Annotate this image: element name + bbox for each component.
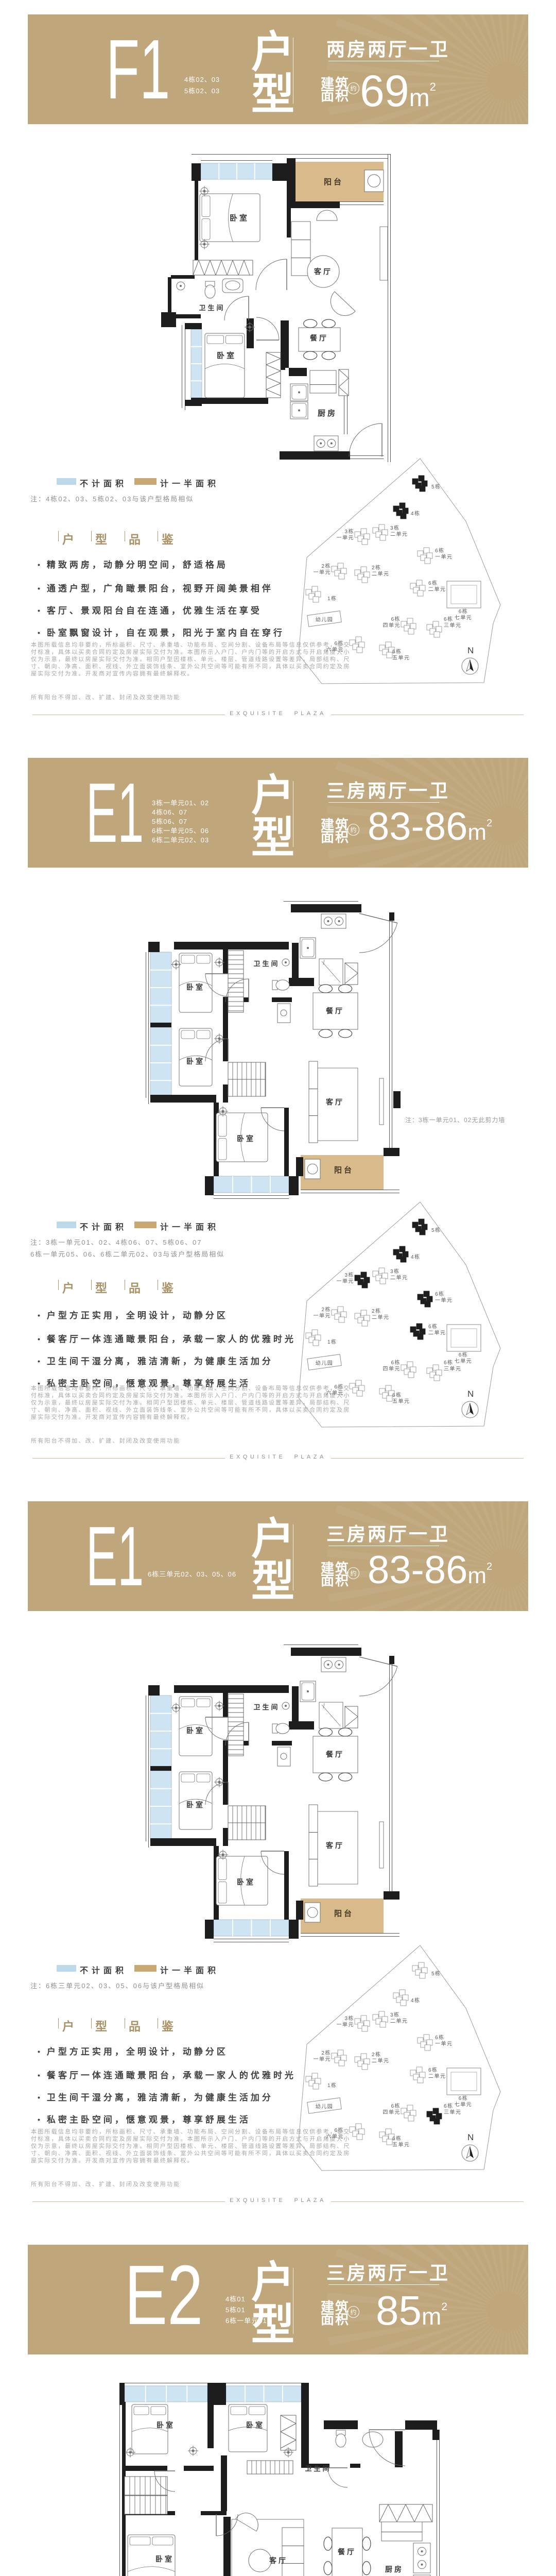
- svg-text:6栋: 6栋: [428, 580, 438, 586]
- svg-text:6栋: 6栋: [435, 547, 445, 554]
- svg-text:6栋: 6栋: [392, 2135, 402, 2142]
- svg-text:1栋: 1栋: [327, 2082, 337, 2089]
- svg-text:N: N: [467, 646, 474, 655]
- svg-text:二单元: 二单元: [390, 1275, 408, 1281]
- svg-text:一单元: 一单元: [314, 1313, 332, 1319]
- svg-text:2栋: 2栋: [321, 1306, 331, 1313]
- svg-text:卧室: 卧室: [186, 983, 205, 991]
- svg-text:2栋: 2栋: [372, 564, 381, 571]
- svg-text:餐厅: 餐厅: [325, 1007, 344, 1015]
- svg-text:6栋: 6栋: [435, 1291, 445, 1297]
- svg-text:3栋: 3栋: [344, 1272, 354, 1278]
- svg-text:五单元: 五单元: [392, 2142, 410, 2148]
- svg-text:6栋: 6栋: [428, 1323, 438, 1330]
- svg-text:5栋: 5栋: [431, 1227, 441, 1233]
- svg-text:四单元: 四单元: [383, 2109, 401, 2115]
- svg-text:餐厅: 餐厅: [325, 1750, 344, 1758]
- svg-text:6栋: 6栋: [435, 2034, 445, 2041]
- svg-text:二单元: 二单元: [428, 586, 446, 592]
- svg-text:七单元: 七单元: [455, 615, 473, 621]
- svg-text:一单元: 一单元: [337, 535, 355, 541]
- svg-text:6栋: 6栋: [428, 2066, 438, 2073]
- svg-text:阳台: 阳台: [334, 1165, 354, 1175]
- svg-text:二单元: 二单元: [372, 1314, 390, 1320]
- svg-text:客厅: 客厅: [269, 2556, 288, 2565]
- svg-text:一单元: 一单元: [435, 554, 453, 560]
- svg-text:四单元: 四单元: [383, 1366, 401, 1372]
- svg-text:阳台: 阳台: [324, 177, 343, 187]
- svg-text:卧室: 卧室: [157, 2421, 175, 2429]
- svg-text:阳台: 阳台: [334, 1909, 354, 1918]
- svg-text:二单元: 二单元: [390, 531, 408, 537]
- svg-text:卧室: 卧室: [237, 1134, 255, 1143]
- svg-text:一单元: 一单元: [435, 1297, 453, 1303]
- svg-text:4栋: 4栋: [411, 1253, 421, 1260]
- svg-text:二单元: 二单元: [372, 2058, 390, 2064]
- svg-text:幼儿园: 幼儿园: [316, 2103, 334, 2110]
- svg-text:一单元: 一单元: [435, 2041, 453, 2047]
- svg-text:卫生间: 卫生间: [253, 960, 280, 968]
- svg-text:一单元: 一单元: [314, 569, 332, 575]
- svg-text:客厅: 客厅: [314, 267, 333, 276]
- svg-text:2栋: 2栋: [321, 563, 331, 569]
- svg-text:3栋: 3栋: [390, 524, 400, 531]
- svg-text:三单元: 三单元: [444, 622, 462, 629]
- svg-text:一单元: 一单元: [314, 2056, 332, 2062]
- svg-text:二单元: 二单元: [372, 571, 390, 577]
- svg-text:二单元: 二单元: [428, 1330, 446, 1336]
- svg-text:幼儿园: 幼儿园: [316, 1360, 334, 1366]
- svg-text:4栋: 4栋: [411, 1997, 421, 2004]
- svg-text:3栋: 3栋: [344, 528, 354, 535]
- svg-text:四单元: 四单元: [383, 622, 401, 629]
- svg-text:4栋: 4栋: [411, 510, 421, 517]
- svg-text:1栋: 1栋: [327, 1338, 337, 1345]
- svg-text:6栋: 6栋: [391, 2103, 401, 2109]
- svg-text:一单元: 一单元: [337, 1278, 355, 1284]
- svg-text:卫生间: 卫生间: [305, 2465, 331, 2472]
- svg-text:厨房: 厨房: [318, 409, 337, 418]
- svg-text:6栋: 6栋: [444, 616, 454, 622]
- svg-text:二单元: 二单元: [428, 2073, 446, 2079]
- svg-text:一单元: 一单元: [337, 2022, 355, 2028]
- svg-text:七单元: 七单元: [455, 2102, 473, 2108]
- svg-text:卫生间: 卫生间: [253, 1703, 280, 1711]
- svg-text:卧室: 卧室: [246, 2421, 265, 2429]
- svg-text:卧室: 卧室: [186, 1057, 205, 1065]
- svg-text:三单元: 三单元: [444, 1366, 462, 1372]
- svg-text:三单元: 三单元: [444, 2109, 462, 2115]
- svg-text:卧室: 卧室: [186, 1726, 205, 1735]
- svg-text:6栋: 6栋: [459, 1351, 468, 1358]
- svg-text:餐厅: 餐厅: [337, 2548, 356, 2556]
- svg-text:五单元: 五单元: [392, 1398, 410, 1404]
- svg-text:餐厅: 餐厅: [309, 334, 328, 342]
- svg-text:卧室: 卧室: [155, 2555, 174, 2563]
- svg-text:N: N: [467, 2132, 474, 2142]
- svg-text:2栋: 2栋: [372, 2051, 381, 2058]
- svg-text:卧室: 卧室: [237, 1878, 255, 1886]
- svg-text:6栋: 6栋: [444, 2103, 454, 2109]
- svg-text:卫生间: 卫生间: [199, 304, 225, 312]
- svg-text:幼儿园: 幼儿园: [316, 616, 334, 623]
- svg-text:6栋: 6栋: [444, 1359, 454, 1366]
- svg-text:厨房: 厨房: [385, 2565, 404, 2573]
- svg-text:6栋: 6栋: [459, 2095, 468, 2102]
- svg-text:6栋: 6栋: [391, 616, 401, 622]
- svg-text:二单元: 二单元: [390, 2018, 408, 2024]
- svg-text:5栋: 5栋: [431, 483, 441, 490]
- svg-text:卧室: 卧室: [217, 351, 236, 360]
- svg-text:6栋: 6栋: [392, 1392, 402, 1398]
- svg-text:6栋: 6栋: [459, 608, 468, 615]
- svg-text:3栋: 3栋: [390, 2011, 400, 2018]
- svg-text:五单元: 五单元: [392, 655, 410, 661]
- svg-text:七单元: 七单元: [455, 1358, 473, 1364]
- svg-text:3栋: 3栋: [344, 2015, 354, 2022]
- svg-text:卧室: 卧室: [230, 213, 249, 223]
- svg-text:2栋: 2栋: [321, 2049, 331, 2056]
- svg-text:3栋: 3栋: [390, 1268, 400, 1275]
- svg-text:2栋: 2栋: [372, 1308, 381, 1314]
- svg-text:1栋: 1栋: [327, 595, 337, 602]
- svg-text:客厅: 客厅: [325, 1098, 344, 1106]
- svg-text:6栋: 6栋: [392, 648, 402, 655]
- svg-text:卧室: 卧室: [186, 1801, 205, 1809]
- svg-text:N: N: [467, 1389, 474, 1399]
- svg-text:6栋: 6栋: [391, 1359, 401, 1366]
- svg-text:客厅: 客厅: [325, 1841, 344, 1850]
- svg-text:5栋: 5栋: [431, 1970, 441, 1977]
